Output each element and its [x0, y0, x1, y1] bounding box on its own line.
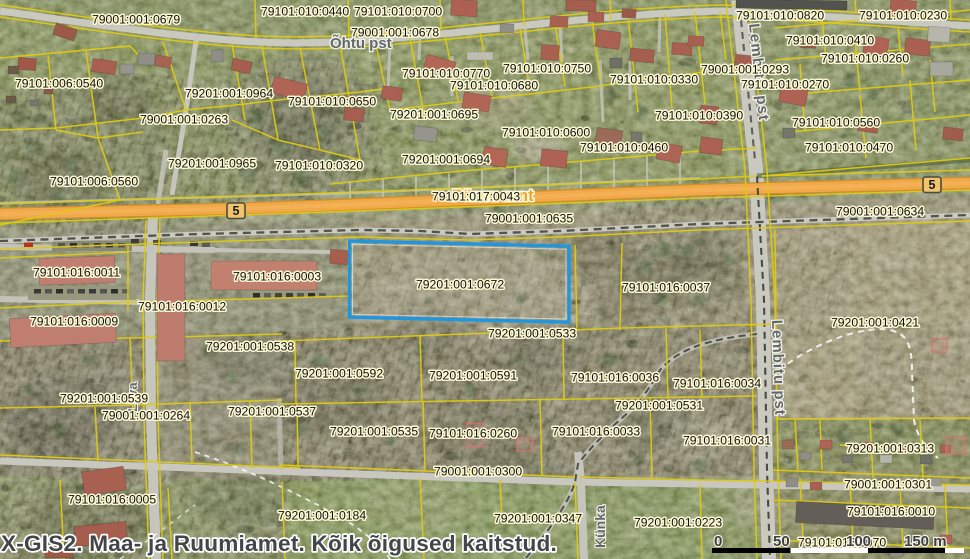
svg-text:79201:001:0695: 79201:001:0695: [390, 108, 478, 122]
svg-text:Lembitu pst: Lembitu pst: [768, 320, 788, 417]
svg-text:79101:010:0600: 79101:010:0600: [502, 126, 590, 140]
svg-text:79101:010:0560: 79101:010:0560: [792, 116, 880, 130]
svg-text:79201:001:0964: 79201:001:0964: [185, 87, 273, 101]
svg-text:79101:016:0009: 79101:016:0009: [30, 315, 118, 329]
svg-text:79101:016:0010: 79101:016:0010: [847, 505, 935, 519]
svg-text:79201:001:0537: 79201:001:0537: [228, 405, 316, 419]
svg-text:79101:006:0560: 79101:006:0560: [50, 175, 138, 189]
svg-text:79001:001:0263: 79001:001:0263: [140, 113, 228, 127]
svg-text:79201:001:0533: 79201:001:0533: [488, 327, 576, 341]
svg-text:79101:010:0700: 79101:010:0700: [354, 5, 442, 19]
svg-text:79101:010:0650: 79101:010:0650: [288, 95, 376, 109]
svg-text:79101:010:0390: 79101:010:0390: [655, 109, 743, 123]
svg-text:150 m: 150 m: [904, 533, 947, 550]
svg-text:79101:016:0033: 79101:016:0033: [552, 425, 640, 439]
svg-text:79201:001:0223: 79201:001:0223: [634, 516, 722, 530]
svg-text:79201:001:0694: 79201:001:0694: [402, 153, 490, 167]
svg-text:79101:016:0034: 79101:016:0034: [673, 377, 761, 391]
svg-text:100: 100: [846, 533, 871, 550]
svg-text:79201:001:0965: 79201:001:0965: [168, 157, 256, 171]
svg-text:79101:010:0230: 79101:010:0230: [859, 9, 947, 23]
svg-text:79101:016:0260: 79101:016:0260: [429, 427, 517, 441]
svg-text:79201:001:0347: 79201:001:0347: [494, 512, 582, 526]
svg-text:79201:001:0421: 79201:001:0421: [831, 316, 919, 330]
svg-text:79201:001:0535: 79201:001:0535: [330, 425, 418, 439]
svg-text:5: 5: [233, 204, 240, 218]
svg-text:79101:016:0012: 79101:016:0012: [138, 300, 226, 314]
svg-text:79201:001:0592: 79201:001:0592: [295, 367, 383, 381]
svg-text:79201:001:0184: 79201:001:0184: [278, 509, 366, 523]
svg-text:79001:001:0300: 79001:001:0300: [434, 465, 522, 479]
svg-text:5: 5: [929, 178, 936, 192]
svg-text:79101:010:0680: 79101:010:0680: [450, 79, 538, 93]
svg-text:79101:010:0460: 79101:010:0460: [580, 141, 668, 155]
svg-text:79001:001:0293: 79001:001:0293: [701, 63, 789, 77]
svg-text:X-GIS2. Maa- ja Ruumiamet. Kõi: X-GIS2. Maa- ja Ruumiamet. Kõik õigused …: [1, 531, 557, 556]
svg-text:79101:016:0011: 79101:016:0011: [33, 266, 120, 280]
svg-text:79201:001:0591: 79201:001:0591: [429, 369, 517, 383]
svg-text:79201:001:0313: 79201:001:0313: [846, 442, 934, 456]
svg-text:79101:016:0005: 79101:016:0005: [68, 493, 156, 507]
svg-text:79101:010:0820: 79101:010:0820: [736, 9, 824, 23]
svg-text:79001:001:0634: 79001:001:0634: [836, 205, 924, 219]
svg-text:79201:001:0538: 79201:001:0538: [206, 340, 294, 354]
svg-text:Künka: Künka: [592, 505, 608, 548]
svg-text:79001:001:0679: 79001:001:0679: [92, 13, 180, 27]
svg-text:79101:016:0003: 79101:016:0003: [233, 270, 321, 284]
svg-text:50: 50: [773, 533, 790, 550]
svg-text:79001:001:0264: 79001:001:0264: [102, 409, 190, 423]
svg-text:79201:001:0672: 79201:001:0672: [416, 278, 504, 292]
svg-text:79101:010:0470: 79101:010:0470: [805, 141, 893, 155]
svg-text:79001:001:0301: 79001:001:0301: [844, 478, 932, 492]
svg-text:0: 0: [714, 533, 722, 550]
svg-text:79101:010:0270: 79101:010:0270: [741, 78, 829, 92]
svg-text:79101:010:0330: 79101:010:0330: [610, 73, 698, 87]
svg-text:79101:010:0750: 79101:010:0750: [503, 62, 591, 76]
svg-text:79201:001:0531: 79201:001:0531: [615, 399, 703, 413]
svg-text:79101:010:0440: 79101:010:0440: [261, 5, 349, 19]
svg-text:79201:001:0539: 79201:001:0539: [60, 392, 148, 406]
svg-text:79101:016:0037: 79101:016:0037: [622, 281, 710, 295]
svg-text:79101:010:0410: 79101:010:0410: [786, 34, 874, 48]
svg-text:79101:006:0540: 79101:006:0540: [15, 77, 103, 91]
svg-text:79101:010:0260: 79101:010:0260: [821, 52, 909, 66]
svg-text:79101:016:0070: 79101:016:0070: [798, 536, 886, 550]
svg-text:79101:016:0031: 79101:016:0031: [683, 434, 771, 448]
svg-text:79101:010:0320: 79101:010:0320: [275, 159, 363, 173]
svg-text:79101:017:0043: 79101:017:0043: [432, 190, 520, 204]
svg-text:79101:016:0036: 79101:016:0036: [571, 371, 659, 385]
svg-text:79001:001:0678: 79001:001:0678: [351, 26, 439, 40]
svg-text:79001:001:0635: 79001:001:0635: [485, 212, 573, 226]
